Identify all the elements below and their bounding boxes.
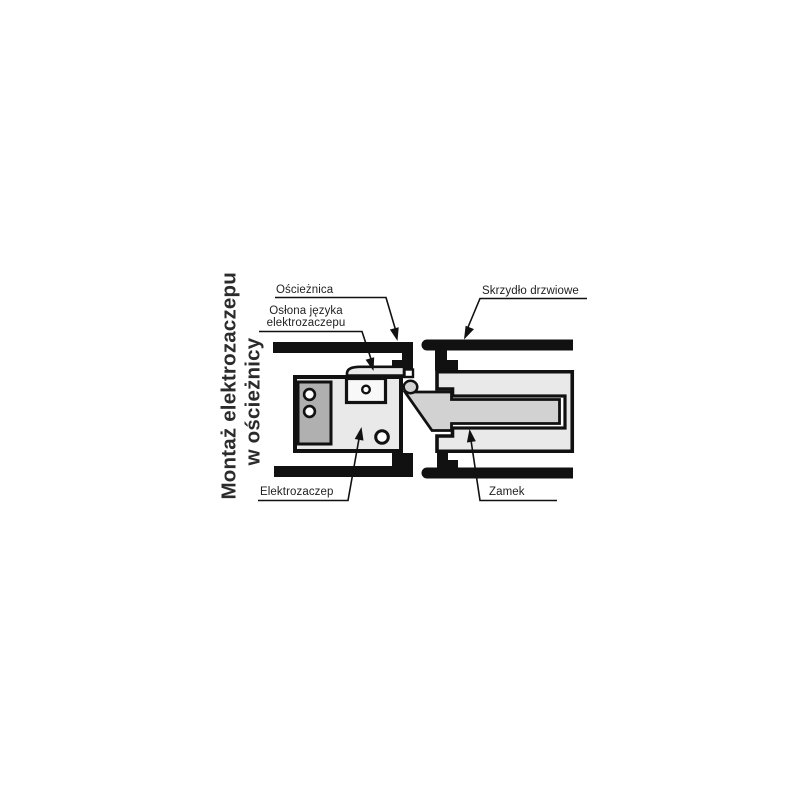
diagram-title: Montaż elektrozaczepu w ościeżnicy xyxy=(218,304,267,500)
diagram-title-line1: Montaż elektrozaczepu xyxy=(218,304,242,500)
frame-bottom-rebate xyxy=(392,453,413,467)
strike-label: Elektrozaczep xyxy=(260,486,334,498)
door-label-leader xyxy=(466,299,587,333)
cover-label-line2: elektrozaczepu xyxy=(267,317,346,329)
diagram-page: Montaż elektrozaczepu w ościeżnicy Oście… xyxy=(0,0,800,800)
door-leaf-label: Skrzydło drzwiowe xyxy=(482,285,579,297)
frame-label: Ościeżnica xyxy=(276,284,333,296)
strike-chamber-hole xyxy=(362,386,370,394)
frame-top-bar xyxy=(273,342,413,353)
door-bottom-bar xyxy=(422,468,573,479)
frame-label-arrowhead xyxy=(390,327,399,341)
strike-mounting-diagram xyxy=(0,0,800,800)
diagram-title-line2: w ościeżnicy xyxy=(242,304,266,500)
cover-label: Osłona języka elektrozaczepu xyxy=(249,306,363,329)
strike-tongue xyxy=(404,381,418,393)
frame-keeper-notch xyxy=(405,370,414,378)
door-top-stile xyxy=(435,350,447,371)
door-top-step xyxy=(447,360,458,371)
lock-label: Zamek xyxy=(489,486,525,498)
strike-tongue-cover xyxy=(347,367,404,376)
door-bottom-step xyxy=(443,460,458,468)
strike-mount-hole xyxy=(376,431,389,444)
door-label-arrowhead xyxy=(464,326,474,340)
frame-bottom-bar xyxy=(274,466,413,477)
door-top-bar xyxy=(422,340,573,351)
strike-terminal-hole-bottom xyxy=(304,406,315,417)
strike-terminal-hole-top xyxy=(304,389,315,400)
cover-label-line1: Osłona języka xyxy=(269,305,343,317)
